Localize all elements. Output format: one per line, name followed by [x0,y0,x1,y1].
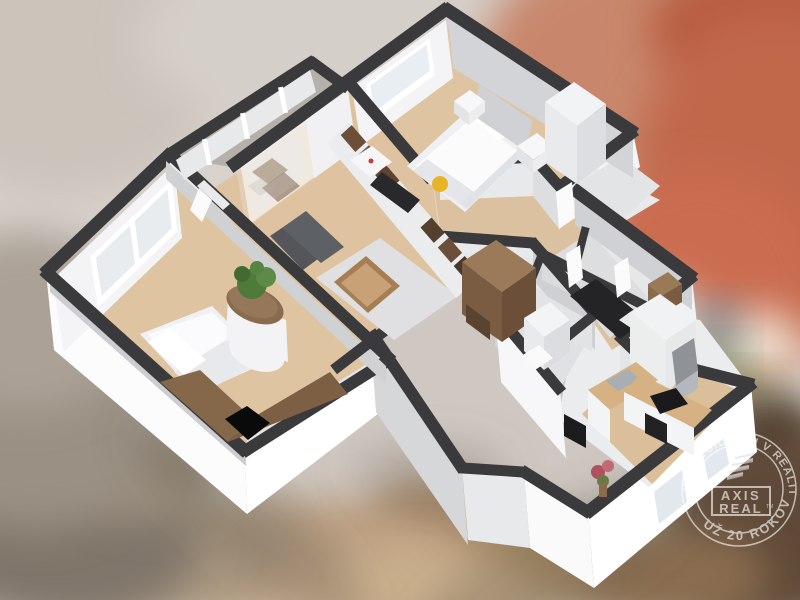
svg-text:REAL: REAL [719,501,762,516]
svg-text:TM: TM [766,504,773,510]
